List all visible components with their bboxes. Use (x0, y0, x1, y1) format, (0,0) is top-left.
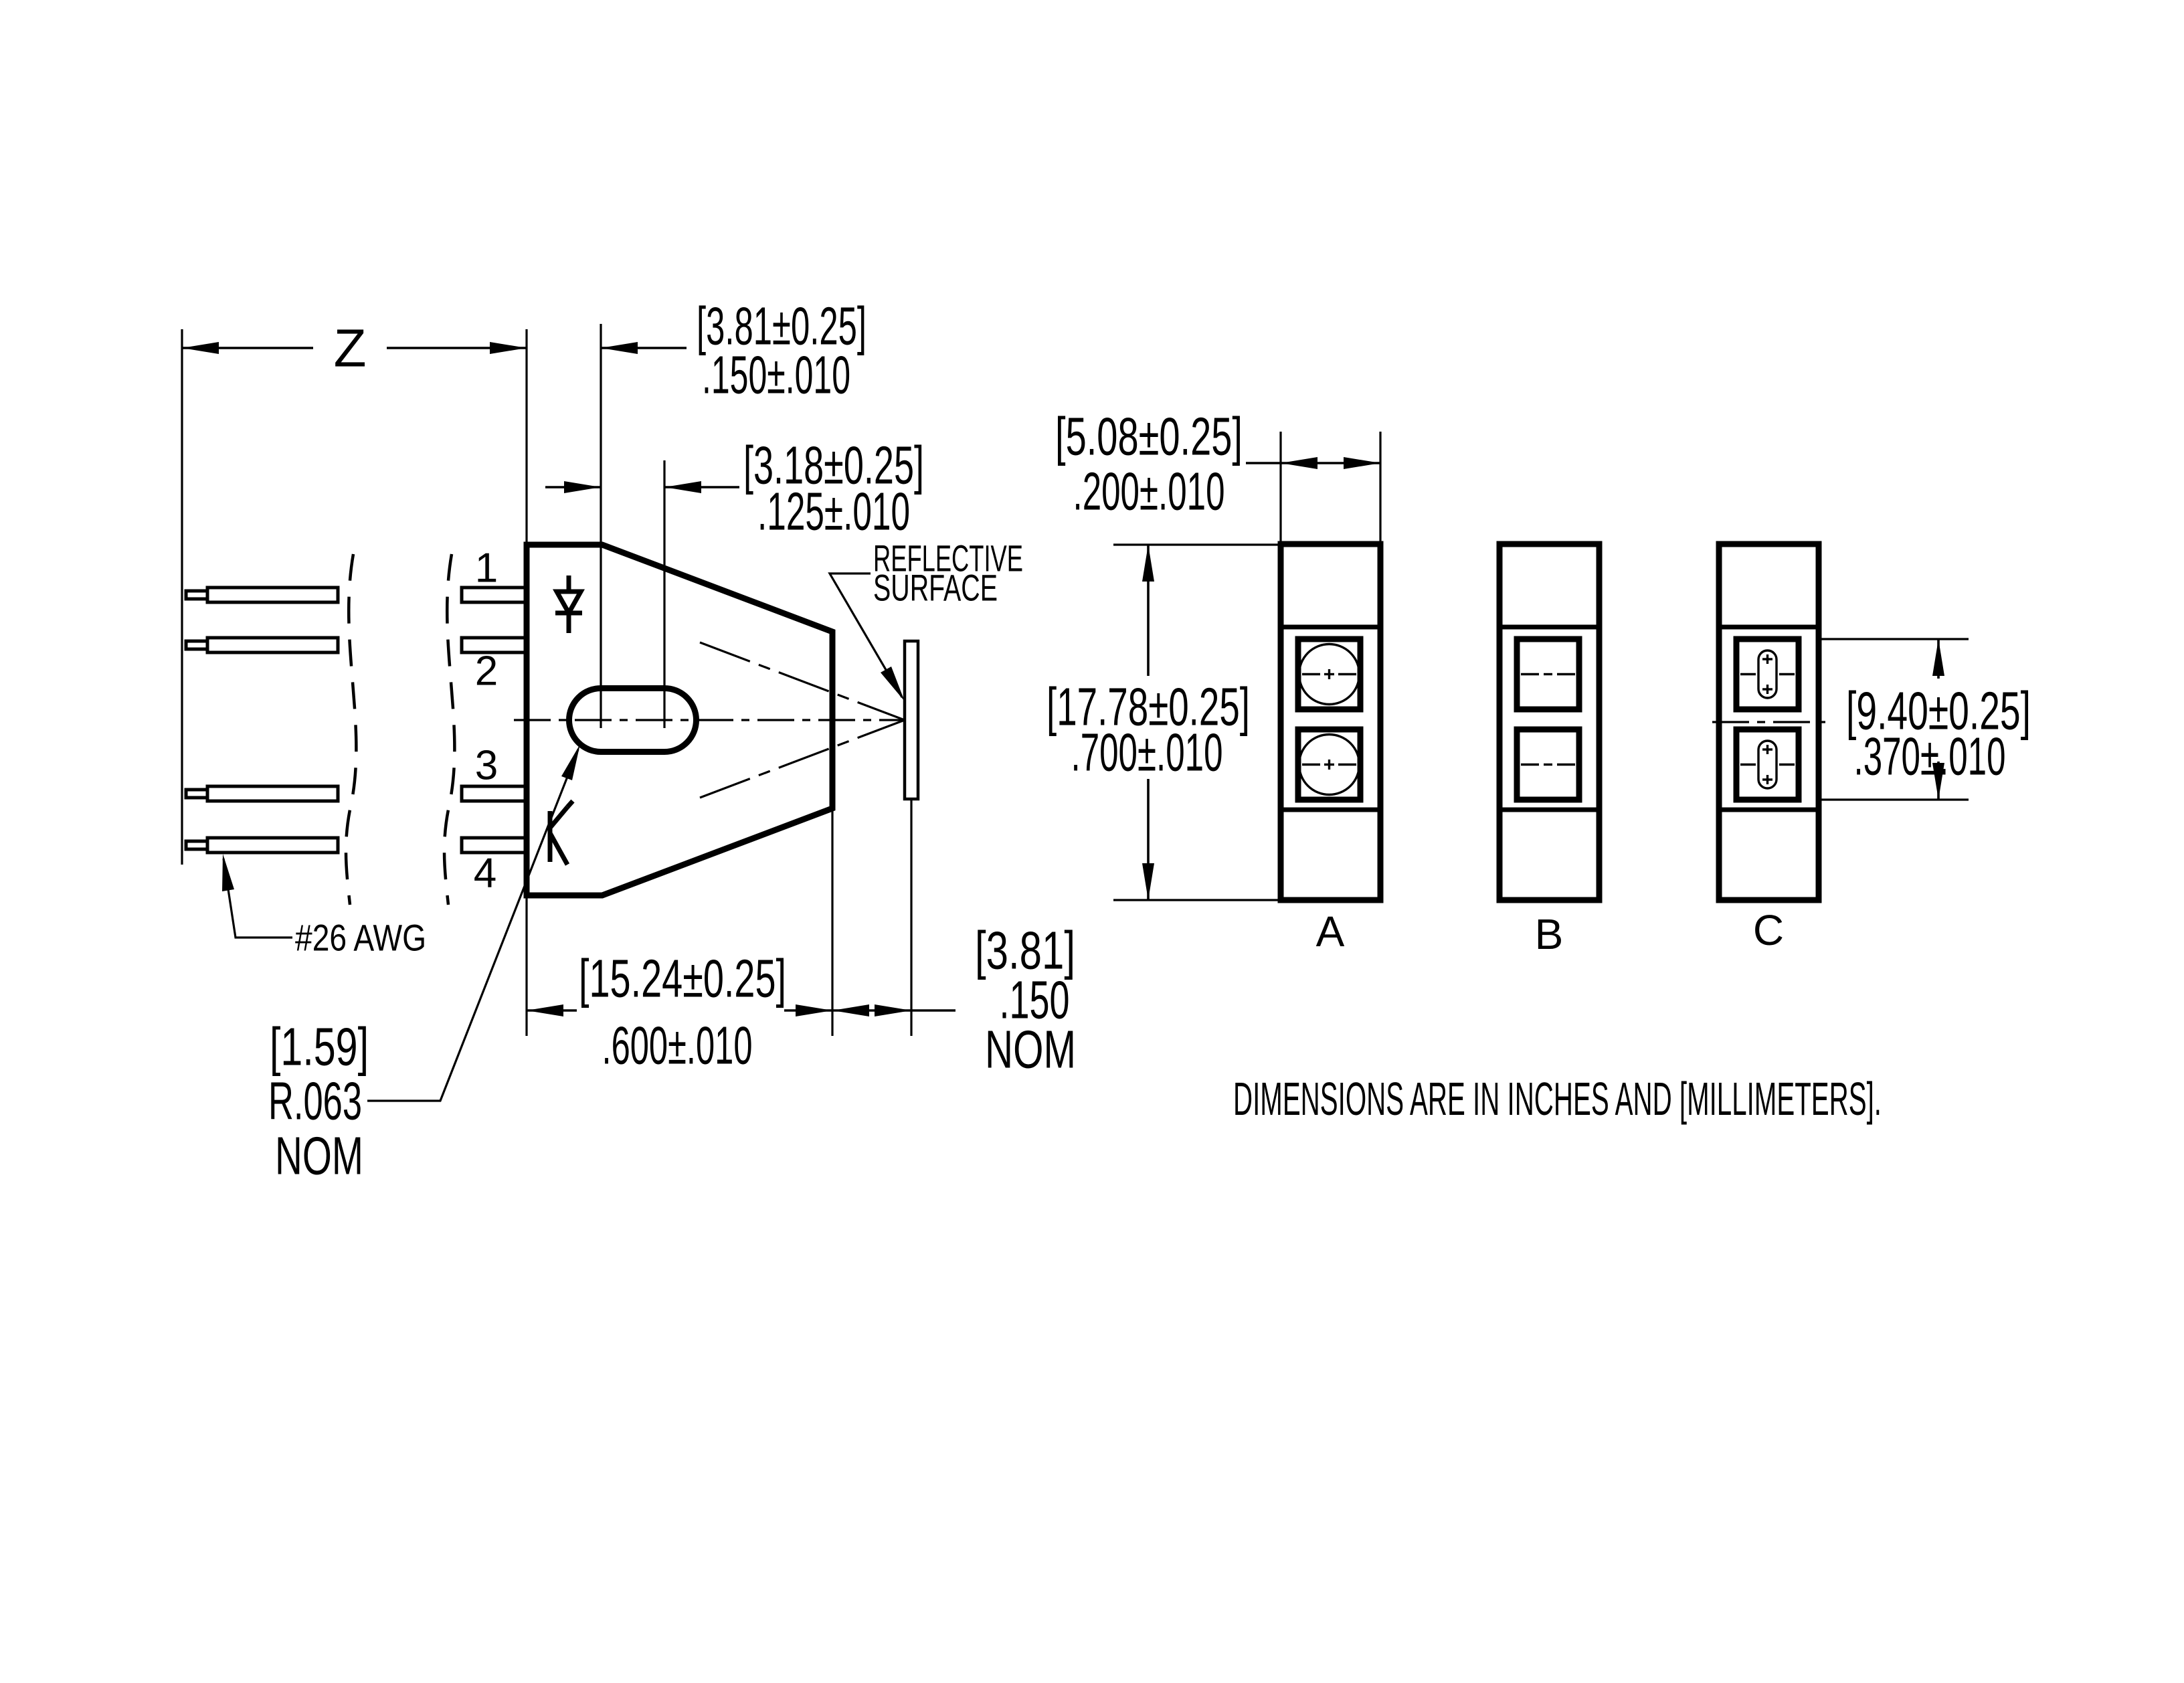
dim-body-width-mm: [15.24±0.25] (579, 949, 786, 1008)
dim-lead-length: Z (182, 319, 527, 378)
lead4-tip (186, 841, 207, 849)
dim-aperture-span-in: .370±.010 (1854, 727, 2006, 786)
extension-lines (182, 324, 911, 1036)
view-a-centermarks (1302, 669, 1356, 770)
front-view-b: B (1499, 544, 1599, 958)
dim-view-width-mm: [5.08±0.25] (1055, 407, 1243, 466)
led-diode-symbol (555, 575, 582, 633)
slot-radius-leader-arrowhead (561, 744, 580, 780)
dim-view-width-in: .200±.010 (1073, 462, 1225, 521)
emitter-ray (700, 642, 905, 720)
reflective-surface-label-2: SURFACE (873, 567, 998, 609)
front-view-c: C (1712, 544, 1825, 954)
lead-wires (186, 588, 527, 853)
pin-label-2: 2 (475, 648, 498, 695)
sensor-dimension-drawing: 1 2 3 4 REFLECTIVE SURFACE (0, 0, 2184, 1683)
reflective-surface-strip (905, 641, 918, 799)
view-c-label: C (1753, 906, 1784, 954)
dim-aperture-span: [9.40±0.25] .370±.010 (1819, 639, 2031, 800)
view-b-label: B (1535, 910, 1564, 958)
dim-lead-length-label: Z (334, 319, 367, 378)
lead3-tip (186, 790, 207, 798)
dim-slot-length: [3.18±0.25] .125±.010 (545, 436, 924, 541)
dim-view-width: [5.08±0.25] .200±.010 (1055, 407, 1380, 588)
units-note: DIMENSIONS ARE IN INCHES AND [MILLIMETER… (1233, 1073, 1882, 1125)
view-a-outline (1281, 544, 1380, 900)
slot-radius-qualifier: NOM (275, 1126, 363, 1186)
pin-label-1: 1 (475, 545, 498, 592)
lead1-tip (186, 591, 207, 599)
front-views: A B (1046, 407, 2031, 959)
dim-view-height: [17.78±0.25] .700±.010 (1046, 545, 1281, 900)
dim-body-width: [15.24±0.25] .600±.010 (527, 949, 832, 1075)
dim-slot-offset-in: .150±.010 (702, 345, 850, 405)
pin-label-3: 3 (475, 743, 498, 789)
wire-gauge-leader (223, 859, 292, 938)
wire-gauge-leader-arrowhead (222, 854, 234, 891)
lead2-tip (186, 641, 207, 649)
lead1-seg1 (207, 588, 338, 602)
front-view-a: A (1281, 544, 1380, 956)
dim-view-height-in: .700±.010 (1071, 723, 1223, 782)
view-b-centermarks (1521, 675, 1575, 765)
break-line-right (444, 554, 454, 905)
view-c-aperture-crosses (1762, 654, 1772, 784)
view-b-outline (1499, 544, 1599, 900)
slot-radius-mm: [1.59] (270, 1017, 369, 1077)
detector-ray (700, 720, 905, 798)
dim-slot-offset: [3.81±0.25] .150±.010 (601, 296, 867, 405)
dim-focal-distance: [3.81] .150 NOM (832, 921, 1076, 1079)
dim-focal-distance-qualifier: NOM (985, 1020, 1076, 1079)
reflective-surface-leader-arrowhead (881, 667, 905, 701)
pin-label-4: 4 (474, 851, 496, 897)
dim-slot-length-in: .125±.010 (757, 482, 910, 541)
lead4-seg1 (207, 838, 338, 853)
lead2-seg1 (207, 638, 338, 652)
lead3-seg1 (207, 786, 338, 801)
dim-body-width-in: .600±.010 (602, 1016, 753, 1075)
wire-gauge-label: #26 AWG (295, 917, 426, 959)
view-a-label: A (1316, 907, 1345, 956)
slot-radius-in: R.063 (268, 1071, 362, 1131)
break-line-left (346, 554, 356, 905)
side-view: 1 2 3 4 REFLECTIVE SURFACE (182, 296, 1076, 1186)
